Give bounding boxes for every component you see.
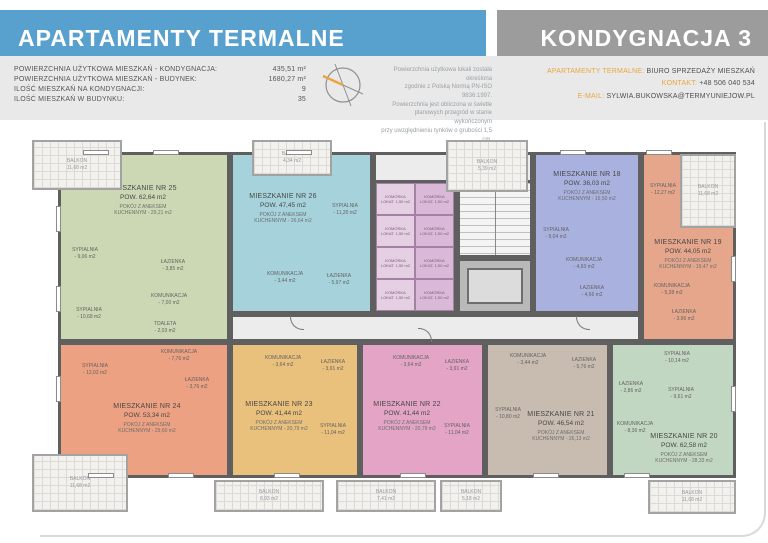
apartment-kitchen: KUCHENNYM - 19,47 m2	[644, 264, 732, 270]
elevator-car	[467, 268, 523, 304]
balcony-apartment-19: BALKON 11,68 m2	[680, 154, 736, 228]
balcony-apartment-26: BALKON 4,34 m2	[252, 140, 332, 176]
apartment-name: MIESZKANIE NR 26	[235, 193, 331, 200]
apartment-name: MIESZKANIE NR 18	[538, 171, 636, 178]
apartment-name: MIESZKANIE NR 22	[363, 401, 451, 408]
window-marker	[56, 376, 61, 402]
apartment-26: MIESZKANIE NR 26 POW. 47,45 m2 POKÓJ Z A…	[230, 152, 373, 314]
balcony-area: 4,34 m2	[283, 158, 301, 165]
storage-cell: KOMÓRKALOKAT. 1,50 m2	[376, 215, 415, 247]
storage-cell: KOMÓRKALOKAT. 1,50 m2	[376, 183, 415, 215]
balcony-area: 11,68 m2	[682, 497, 702, 504]
legal-note: Powierzchnia użytkowa lokali została okr…	[376, 66, 492, 144]
apartment-kitchen: KUCHENNYM - 26,13 m2	[514, 436, 608, 442]
stat-row: POWIERZCHNIA UŻYTKOWA MIESZKAŃ - KONDYGN…	[14, 65, 306, 75]
floor-stats: POWIERZCHNIA UŻYTKOWA MIESZKAŃ - KONDYGN…	[14, 65, 306, 105]
balcony-area: 11,68 m2	[698, 191, 718, 198]
contact-block: APARTAMENTY TERMALNE: BIURO SPRZEDAŻY MI…	[547, 66, 755, 103]
apartment-area: POW. 36,03 m2	[538, 180, 636, 187]
stat-label: ILOŚĆ MIESZKAŃ NA KONDYGNACJI:	[14, 85, 144, 95]
room-label: SYPIALNIA- 9,61 m2	[659, 387, 703, 400]
header-band-gray: KONDYGNACJA 3	[497, 10, 768, 56]
window-marker	[624, 473, 650, 478]
room-label: ŁAZIENKA- 4,66 m2	[570, 285, 614, 298]
room-label: KOMUNIKACJA- 3,64 m2	[257, 355, 309, 368]
apartment-kitchen: KUCHENNYM - 28,33 m2	[635, 458, 733, 464]
apartment-title: MIESZKANIE NR 21 POW. 46,54 m2 POKÓJ Z A…	[514, 411, 608, 443]
room-label: SYPIALNIA- 10,68 m2	[67, 307, 111, 320]
window-marker	[400, 473, 426, 478]
balcony-apartment-23: BALKON 8,93 m2	[214, 480, 324, 512]
apartment-23: KOMUNIKACJA- 3,64 m2 ŁAZIENKA- 3,91 m2 M…	[230, 342, 360, 478]
apartment-area: POW. 41,44 m2	[363, 410, 451, 417]
compass-rose-icon	[320, 62, 366, 108]
contact-label: E-MAIL:	[578, 93, 605, 100]
room-label: KOMUNIKACJA- 7,76 m2	[153, 349, 205, 362]
stat-label: POWIERZCHNIA UŻYTKOWA MIESZKAŃ - BUDYNEK…	[14, 75, 197, 85]
window-marker	[731, 386, 736, 412]
balcony-area: 11,68 m2	[67, 165, 87, 172]
balcony-apartment-22: BALKON 7,41 m2	[336, 480, 436, 512]
room-label: ŁAZIENKA- 3,96 m2	[662, 309, 706, 322]
apartment-area: POW. 62,64 m2	[69, 194, 217, 201]
apartment-title: MIESZKANIE NR 24 POW. 53,34 m2 POKÓJ Z A…	[77, 403, 217, 435]
apartment-name: MIESZKANIE NR 21	[514, 411, 608, 418]
storage-cell: KOMÓRKALOKAT. 1,50 m2	[415, 247, 454, 279]
apartment-22: KOMUNIKACJA- 3,64 m2 ŁAZIENKA- 3,91 m2 M…	[360, 342, 485, 478]
balcony-label: BALKON	[682, 490, 702, 497]
storage-cell: KOMÓRKALOKAT. 1,50 m2	[376, 247, 415, 279]
balcony-area: 5,39 m2	[478, 166, 496, 173]
apartment-title: MIESZKANIE NR 18 POW. 36,03 m2 POKÓJ Z A…	[538, 171, 636, 203]
stat-row: ILOŚĆ MIESZKAŃ NA KONDYGNACJI: 9	[14, 85, 306, 95]
note-line: Powierzchnia jest obliczona w świetle	[376, 101, 492, 110]
window-marker	[153, 150, 179, 155]
stat-value: 35	[298, 95, 306, 105]
apartment-area: POW. 53,34 m2	[77, 412, 217, 419]
apartment-name: MIESZKANIE NR 24	[77, 403, 217, 410]
window-marker	[56, 206, 61, 232]
room-label: ŁAZIENKA- 3,91 m2	[437, 359, 477, 372]
room-label: KOMUNIKACJA- 3,44 m2	[502, 353, 554, 366]
apartment-kitchen: KUCHENNYM - 29,21 m2	[69, 210, 217, 216]
apartment-area: POW. 41,44 m2	[233, 410, 325, 417]
contact-label: APARTAMENTY TERMALNE:	[547, 68, 644, 75]
note-line: planowych przegród w stanie wykończonym	[376, 109, 492, 126]
window-marker	[533, 473, 559, 478]
contact-phone: +48 506 040 534	[699, 80, 755, 87]
apartment-name: MIESZKANIE NR 23	[233, 401, 325, 408]
apartment-area: POW. 44,05 m2	[644, 248, 732, 255]
room-label: SYPIALNIA- 12,02 m2	[73, 363, 117, 376]
page-title: APARTAMENTY TERMALNE	[0, 25, 345, 56]
room-label: ŁAZIENKA- 3,85 m2	[153, 259, 193, 272]
floor-label: KONDYGNACJA 3	[540, 25, 768, 56]
balcony-apartment-24: BALKON 11,68 m2	[32, 454, 128, 512]
balcony-label: BALKON	[259, 489, 279, 496]
storage-cell: KOMÓRKALOKAT. 1,50 m2	[376, 279, 415, 311]
storage-cell: KOMÓRKALOKAT. 1,50 m2	[415, 279, 454, 311]
room-label: ŁAZIENKA- 3,91 m2	[313, 359, 353, 372]
contact-row: E-MAIL: SYLWIA.BUKOWSKA@TERMYUNIEJOW.PL	[547, 91, 755, 103]
balcony-label: BALKON	[461, 489, 481, 496]
room-label: TOALETA- 2,03 m2	[145, 321, 185, 334]
balcony-area: 8,93 m2	[260, 496, 278, 503]
apartment-title: MIESZKANIE NR 26 POW. 47,45 m2 POKÓJ Z A…	[235, 193, 331, 225]
balcony-area: 7,41 m2	[377, 496, 395, 503]
balcony-label: BALKON	[67, 158, 87, 165]
balcony-area: 11,68 m2	[70, 483, 90, 490]
balcony-area: 5,18 m2	[462, 496, 480, 503]
room-label: SYPIALNIA- 11,20 m2	[323, 203, 367, 216]
contact-email: SYLWIA.BUKOWSKA@TERMYUNIEJOW.PL	[606, 93, 755, 100]
apartment-20: SYPIALNIA- 10,14 m2 SYPIALNIA- 9,61 m2 Ł…	[610, 342, 736, 478]
window-marker	[56, 286, 61, 312]
contact-row: APARTAMENTY TERMALNE: BIURO SPRZEDAŻY MI…	[547, 66, 755, 78]
room-label: SYPIALNIA- 10,14 m2	[655, 351, 699, 364]
window-marker	[731, 256, 736, 282]
window-marker	[286, 150, 312, 155]
room-label: SYPIALNIA- 11,04 m2	[311, 423, 355, 436]
stat-label: POWIERZCHNIA UŻYTKOWA MIESZKAŃ - KONDYGN…	[14, 65, 217, 75]
contact-value: BIURO SPRZEDAŻY MIESZKAŃ	[646, 68, 755, 75]
room-label: SYPIALNIA- 9,06 m2	[63, 247, 107, 260]
stat-row: ILOŚĆ MIESZKAŃ W BUDYNKU: 35	[14, 95, 306, 105]
balcony-apartment-21: BALKON 5,18 m2	[440, 480, 502, 512]
window-marker	[646, 150, 672, 155]
room-label: KOMUNIKACJA- 5,38 m2	[646, 283, 698, 296]
balcony-label: BALKON	[376, 489, 396, 496]
balcony-label: BALKON	[698, 184, 718, 191]
room-label: ŁAZIENKA- 5,97 m2	[319, 273, 359, 286]
apartment-kitchen: KUCHENNYM - 26,64 m2	[235, 218, 331, 224]
window-marker	[274, 473, 300, 478]
apartment-area: POW. 62,58 m2	[635, 442, 733, 449]
stat-value: 1680,27 m²	[269, 75, 306, 85]
note-line: Powierzchnia użytkowa lokali została okr…	[376, 66, 492, 83]
stat-row: POWIERZCHNIA UŻYTKOWA MIESZKAŃ - BUDYNEK…	[14, 75, 306, 85]
note-line: zgodnie z Polską Normą PN-ISO 9836:1997.	[376, 83, 492, 100]
room-label: SYPIALNIA- 12,27 m2	[644, 183, 682, 196]
storage-units: KOMÓRKALOKAT. 1,50 m2 KOMÓRKALOKAT. 1,50…	[373, 180, 457, 314]
room-label: ŁAZIENKA- 3,76 m2	[177, 377, 217, 390]
room-label: ŁAZIENKA- 2,86 m2	[613, 381, 649, 394]
apartment-area: POW. 47,45 m2	[235, 202, 331, 209]
room-label: KOMUNIKACJA- 3,44 m2	[259, 271, 311, 284]
apartment-title: MIESZKANIE NR 19 POW. 44,05 m2 POKÓJ Z A…	[644, 239, 732, 271]
room-label: KOMUNIKACJA- 4,93 m2	[558, 257, 610, 270]
contact-row: KONTAKT: +48 506 040 534	[547, 78, 755, 90]
room-label: KOMUNIKACJA- 3,64 m2	[385, 355, 437, 368]
balcony-apartment-25: BALKON 11,68 m2	[32, 140, 122, 190]
apartment-kitchen: KUCHENNYM - 16,50 m2	[538, 196, 636, 202]
elevator	[457, 258, 533, 314]
contact-label: KONTAKT:	[662, 80, 697, 87]
room-label: SYPIALNIA- 9,04 m2	[536, 227, 576, 240]
window-marker	[168, 473, 194, 478]
apartment-18: MIESZKANIE NR 18 POW. 36,03 m2 POKÓJ Z A…	[533, 152, 641, 314]
balcony-apartment-18: BALKON 5,39 m2	[446, 140, 528, 192]
room-label: SYPIALNIA- 11,04 m2	[435, 423, 479, 436]
stat-value: 435,51 m²	[273, 65, 306, 75]
apartment-title: MIESZKANIE NR 20 POW. 62,58 m2 POKÓJ Z A…	[635, 433, 733, 465]
balcony-label: BALKON	[477, 159, 497, 166]
window-marker	[560, 150, 586, 155]
apartment-name: MIESZKANIE NR 19	[644, 239, 732, 246]
floor-plan: BALKON 11,68 m2 BALKON 4,34 m2 BALKON 5,…	[28, 136, 740, 528]
room-label: KOMUNIKACJA- 7,00 m2	[143, 293, 195, 306]
header-band-blue: APARTAMENTY TERMALNE	[0, 10, 486, 56]
storage-cell: KOMÓRKALOKAT. 1,50 m2	[415, 215, 454, 247]
stat-value: 9	[302, 85, 306, 95]
apartment-name: MIESZKANIE NR 20	[635, 433, 733, 440]
room-label: ŁAZIENKA- 5,76 m2	[564, 357, 604, 370]
apartment-kitchen: KUCHENNYM - 29,60 m2	[77, 428, 217, 434]
stat-label: ILOŚĆ MIESZKAŃ W BUDYNKU:	[14, 95, 124, 105]
balcony-apartment-20: BALKON 11,68 m2	[648, 480, 736, 514]
window-marker	[83, 150, 109, 155]
apartment-21: KOMUNIKACJA- 3,44 m2 ŁAZIENKA- 5,76 m2 S…	[485, 342, 610, 478]
window-marker	[88, 473, 114, 478]
apartment-area: POW. 46,54 m2	[514, 420, 608, 427]
